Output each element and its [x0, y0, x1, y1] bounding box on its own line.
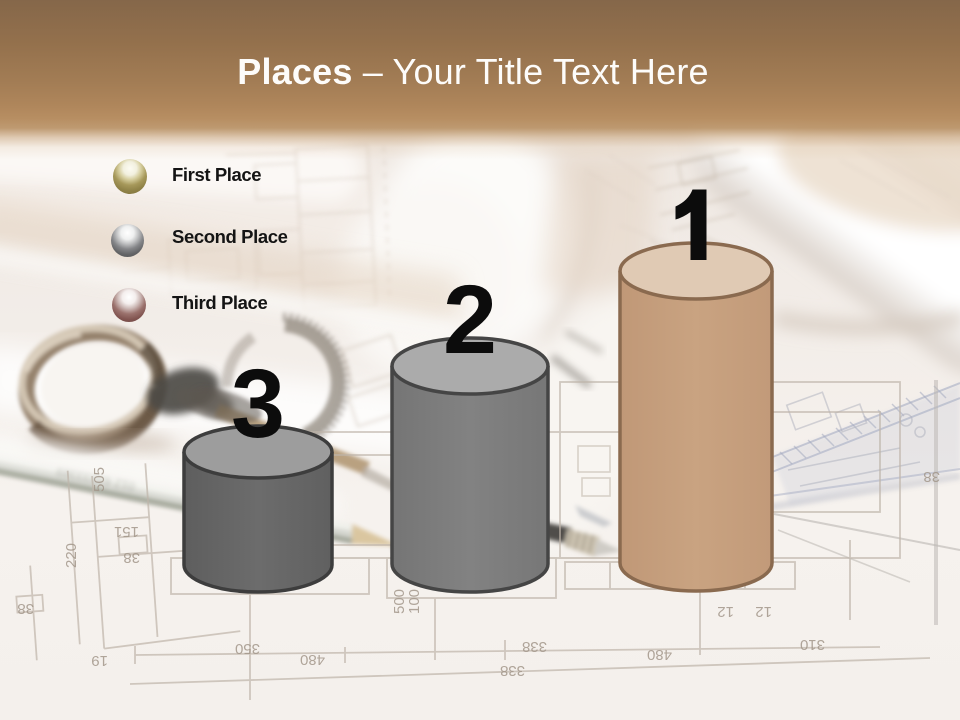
svg-text:100: 100	[406, 589, 423, 614]
svg-text:38: 38	[123, 549, 140, 566]
svg-text:350: 350	[235, 640, 260, 657]
svg-text:338: 338	[500, 662, 525, 679]
svg-text:338: 338	[522, 638, 547, 655]
svg-text:310: 310	[800, 636, 825, 653]
svg-text:12: 12	[755, 603, 772, 620]
svg-text:220: 220	[63, 543, 80, 568]
svg-text:151: 151	[114, 523, 139, 540]
svg-text:12: 12	[717, 603, 734, 620]
svg-text:2: 2	[443, 265, 497, 374]
svg-text:38: 38	[17, 600, 34, 617]
svg-text:505: 505	[91, 467, 108, 492]
svg-text:480: 480	[647, 646, 672, 663]
svg-text:480: 480	[300, 651, 325, 668]
svg-text:19: 19	[91, 652, 108, 669]
svg-text:3: 3	[231, 349, 285, 458]
svg-text:38: 38	[923, 468, 940, 485]
